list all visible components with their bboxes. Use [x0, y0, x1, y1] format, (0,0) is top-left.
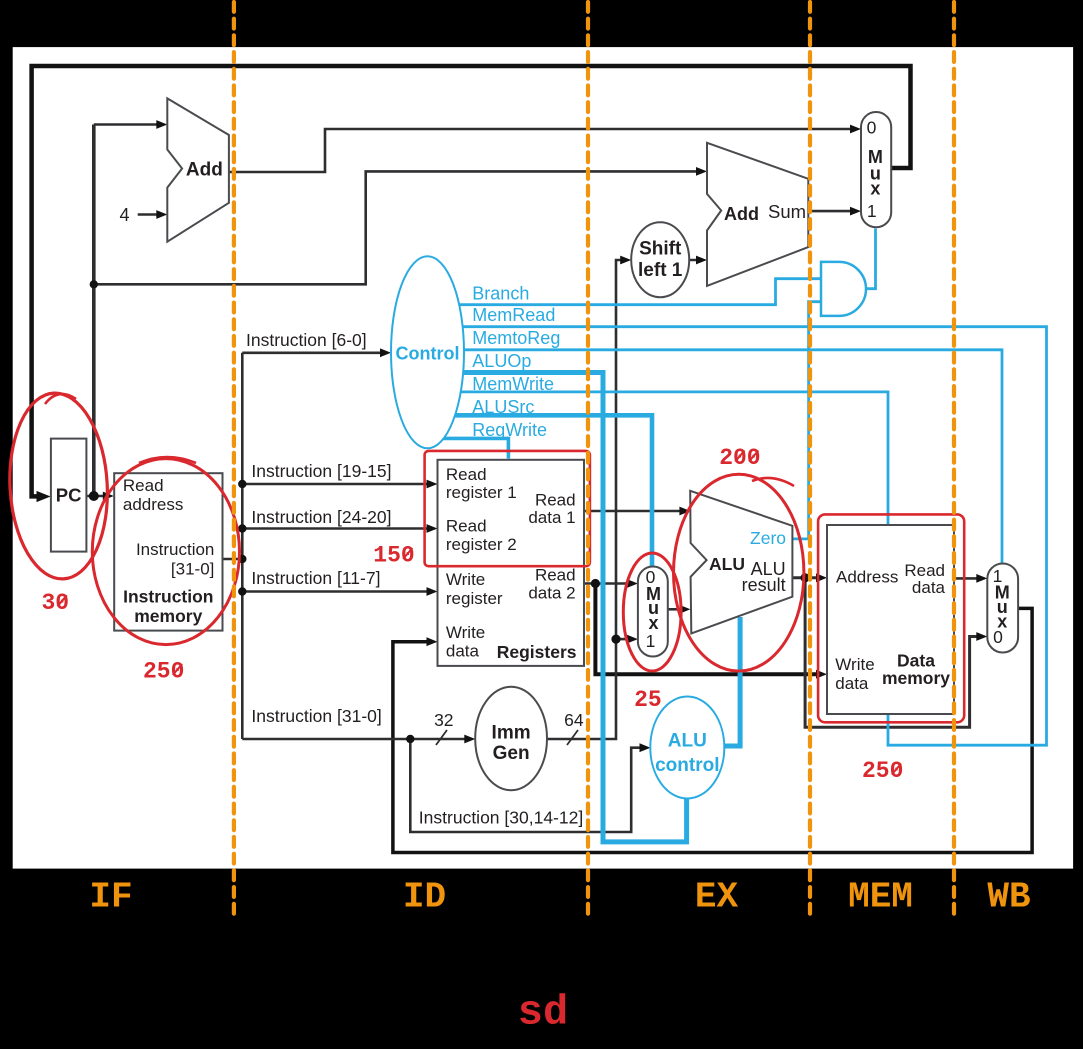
svg-text:32: 32	[434, 710, 453, 730]
svg-text:memory: memory	[134, 606, 202, 626]
svg-text:Read: Read	[535, 490, 576, 509]
svg-text:address: address	[123, 495, 183, 514]
svg-text:register: register	[446, 589, 503, 608]
svg-text:result: result	[742, 575, 786, 595]
svg-text:data: data	[912, 578, 946, 597]
svg-text:Read: Read	[535, 566, 576, 585]
svg-text:sd: sd	[518, 988, 568, 1036]
svg-text:Instruction: Instruction	[136, 540, 214, 559]
svg-text:Add: Add	[186, 159, 223, 180]
svg-text:PC: PC	[56, 485, 82, 506]
svg-text:Instruction [19-15]: Instruction [19-15]	[251, 461, 391, 481]
svg-text:memory: memory	[882, 668, 950, 688]
svg-text:Shift: Shift	[639, 239, 682, 260]
svg-text:control: control	[655, 755, 719, 776]
svg-text:Read: Read	[446, 516, 487, 535]
svg-text:Control: Control	[396, 344, 460, 364]
svg-text:data: data	[446, 642, 480, 661]
svg-text:register 2: register 2	[446, 535, 517, 554]
svg-text:Zero: Zero	[750, 528, 786, 548]
svg-text:left 1: left 1	[638, 260, 683, 281]
svg-text:ALUSrc: ALUSrc	[472, 397, 534, 417]
svg-text:ALUOp: ALUOp	[472, 351, 531, 371]
svg-text:data: data	[835, 674, 869, 693]
svg-text:Write: Write	[835, 655, 874, 674]
svg-text:Instruction [11-7]: Instruction [11-7]	[251, 568, 380, 588]
svg-text:data 2: data 2	[528, 583, 575, 602]
svg-text:Instruction [24-20]: Instruction [24-20]	[251, 507, 391, 527]
svg-text:Instruction [6-0]: Instruction [6-0]	[246, 330, 367, 350]
svg-text:Read: Read	[123, 476, 164, 495]
svg-text:ALU: ALU	[709, 554, 745, 574]
svg-text:data 1: data 1	[528, 508, 575, 527]
svg-text:x: x	[648, 613, 658, 633]
svg-text:Branch: Branch	[472, 284, 529, 304]
svg-text:IF: IF	[89, 876, 132, 917]
svg-text:200: 200	[719, 445, 760, 471]
svg-text:Read: Read	[446, 465, 487, 484]
svg-text:1: 1	[646, 631, 656, 651]
svg-text:WB: WB	[987, 876, 1030, 917]
svg-text:Gen: Gen	[493, 743, 530, 764]
svg-text:4: 4	[119, 205, 129, 225]
svg-text:RegWrite: RegWrite	[472, 420, 547, 440]
svg-text:[31-0]: [31-0]	[171, 560, 214, 579]
svg-text:Address: Address	[836, 568, 898, 587]
svg-text:Instruction [31-0]: Instruction [31-0]	[251, 706, 381, 726]
svg-text:250: 250	[143, 659, 184, 685]
svg-text:250: 250	[862, 758, 903, 784]
svg-text:Write: Write	[446, 570, 485, 589]
svg-text:Instruction: Instruction	[123, 586, 213, 606]
svg-text:MemtoReg: MemtoReg	[472, 328, 560, 348]
svg-text:Registers: Registers	[497, 642, 577, 662]
svg-text:Sum: Sum	[768, 201, 806, 222]
svg-text:ALU: ALU	[668, 731, 707, 752]
svg-text:MEM: MEM	[848, 876, 913, 917]
svg-text:Instruction [30,14-12]: Instruction [30,14-12]	[419, 808, 583, 828]
svg-text:30: 30	[42, 590, 70, 616]
svg-text:0: 0	[993, 627, 1003, 647]
svg-text:0: 0	[867, 118, 877, 138]
svg-text:MemRead: MemRead	[472, 305, 555, 325]
svg-text:Imm: Imm	[492, 723, 531, 744]
svg-text:MemWrite: MemWrite	[472, 374, 554, 394]
svg-text:Add: Add	[724, 204, 759, 224]
svg-text:Write: Write	[446, 623, 485, 642]
svg-text:1: 1	[867, 201, 877, 221]
svg-text:150: 150	[373, 543, 414, 569]
svg-text:64: 64	[564, 710, 584, 730]
svg-text:register 1: register 1	[446, 483, 517, 502]
svg-text:EX: EX	[695, 876, 739, 917]
svg-text:ID: ID	[403, 876, 446, 917]
svg-text:x: x	[870, 179, 880, 199]
svg-text:25: 25	[634, 687, 662, 713]
